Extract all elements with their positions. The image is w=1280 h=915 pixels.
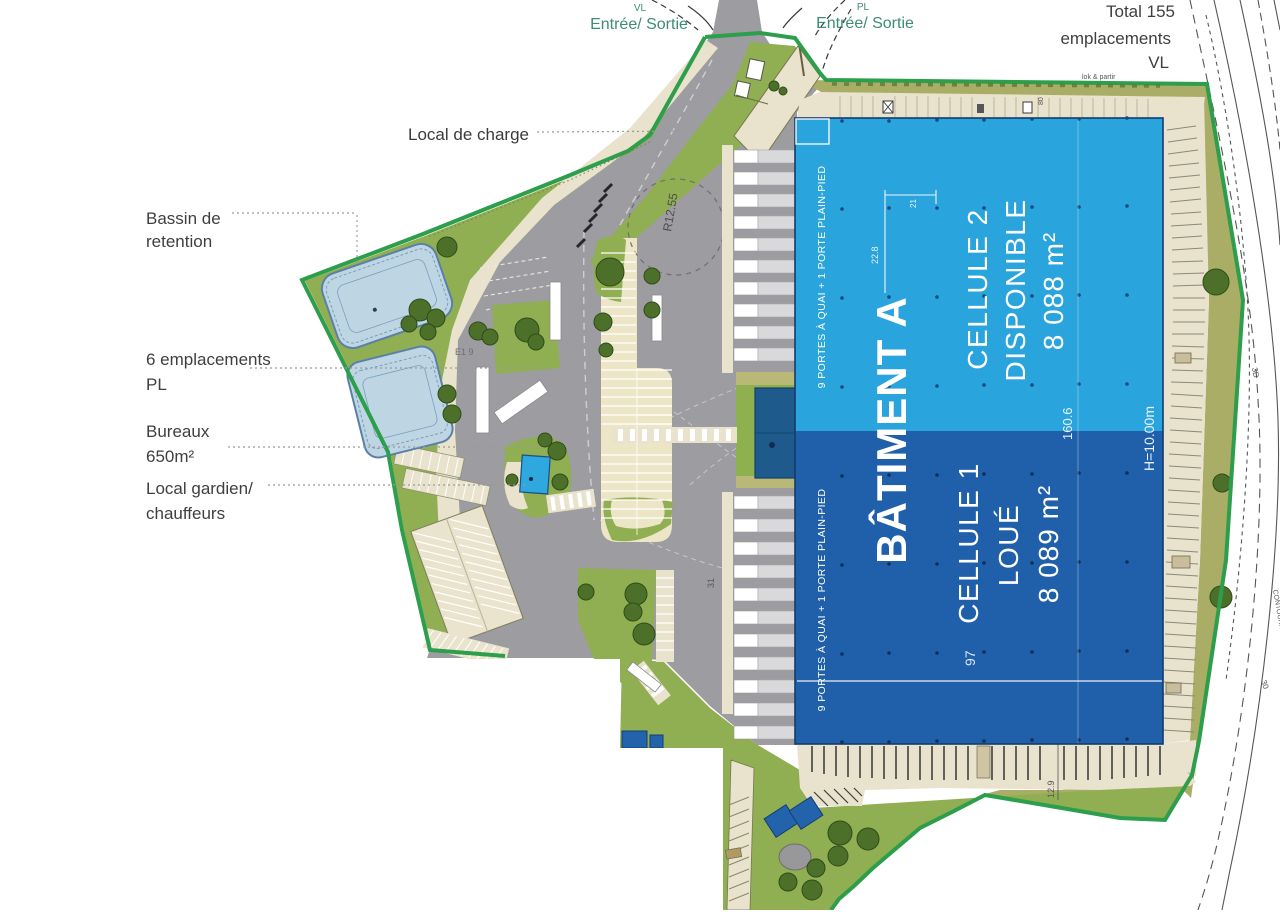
svg-text:CELLULE 2: CELLULE 2 [962, 208, 993, 369]
svg-text:CELLULE 1: CELLULE 1 [953, 462, 984, 623]
svg-text:97: 97 [962, 650, 978, 666]
svg-text:3D: 3D [1250, 367, 1261, 379]
svg-text:PL: PL [857, 2, 870, 13]
svg-text:chauffeurs: chauffeurs [146, 504, 225, 523]
svg-text:VL: VL [634, 3, 647, 14]
svg-text:VL: VL [1148, 53, 1169, 72]
svg-text:160.6: 160.6 [1060, 407, 1075, 440]
svg-text:12.9: 12.9 [1046, 780, 1056, 798]
svg-text:Entrée/ Sortie: Entrée/ Sortie [816, 15, 914, 32]
svg-text:lok & partir: lok & partir [1082, 74, 1116, 81]
svg-text:PL: PL [146, 375, 167, 394]
svg-text:9 PORTES À QUAI + 1 PORTE PLA: 9 PORTES À QUAI + 1 PORTE PLAIN-PIED [815, 166, 828, 389]
svg-text:DISPONIBLE: DISPONIBLE [1000, 198, 1031, 381]
svg-text:31: 31 [706, 578, 716, 588]
svg-text:Bassin de: Bassin de [146, 209, 221, 228]
svg-text:8 088 m²: 8 088 m² [1038, 232, 1069, 351]
svg-text:80: 80 [1038, 97, 1045, 105]
svg-text:retention: retention [146, 232, 212, 251]
svg-text:Bureaux: Bureaux [146, 422, 210, 441]
svg-text:Local de charge: Local de charge [408, 125, 529, 144]
svg-text:6 emplacements: 6 emplacements [146, 350, 271, 369]
svg-text:LOUÉ: LOUÉ [993, 504, 1024, 586]
svg-text:H=10.00m: H=10.00m [1141, 406, 1157, 471]
svg-text:650m²: 650m² [146, 447, 195, 466]
svg-text:Total 155: Total 155 [1106, 2, 1175, 21]
svg-text:21: 21 [909, 199, 918, 208]
svg-text:emplacements: emplacements [1060, 29, 1171, 48]
svg-text:Local gardien/: Local gardien/ [146, 479, 253, 498]
svg-text:9 PORTES À QUAI + 1 PORTE PLA: 9 PORTES À QUAI + 1 PORTE PLAIN-PIED [815, 489, 828, 712]
svg-text:22.8: 22.8 [870, 246, 880, 264]
svg-text:BÂTIMENT A: BÂTIMENT A [867, 296, 915, 563]
svg-text:8 089 m²: 8 089 m² [1033, 485, 1064, 604]
svg-text:Entrée/ Sortie: Entrée/ Sortie [590, 16, 688, 33]
svg-text:E1 9: E1 9 [455, 347, 474, 357]
